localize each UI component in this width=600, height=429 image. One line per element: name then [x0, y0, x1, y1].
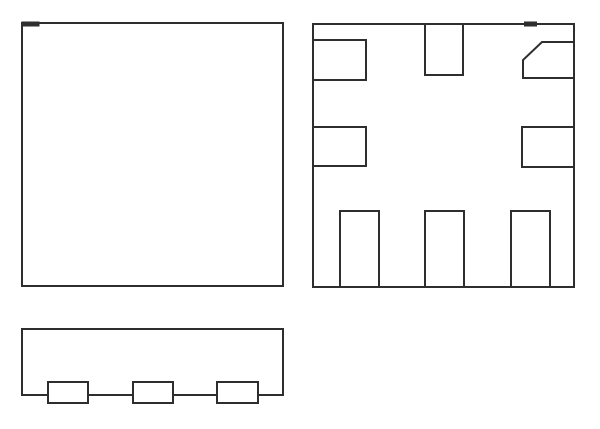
- pad-bottom-left: [340, 211, 379, 287]
- pin1-index-mark-top-view: [22, 22, 40, 27]
- side-view-lead-right: [217, 382, 258, 403]
- package-outline-drawing: [0, 0, 600, 429]
- pad-bottom-center: [425, 211, 464, 287]
- pin1-index-mark-bottom-view: [524, 22, 537, 27]
- side-view-lead-left: [48, 382, 88, 403]
- pad-right-middle: [522, 127, 574, 167]
- top-view-body-outline: [22, 23, 283, 286]
- pad-bottom-right: [511, 211, 550, 287]
- package-side-view: [22, 329, 283, 403]
- package-top-view: [22, 22, 284, 287]
- package-drawing-svg: [0, 0, 600, 429]
- package-bottom-view: [313, 22, 574, 288]
- side-view-lead-center: [133, 382, 173, 403]
- pad-left-middle: [313, 127, 366, 166]
- pad-left-top: [313, 40, 366, 80]
- pad-top-center: [425, 24, 463, 75]
- pad-top-right-chamfered: [523, 42, 574, 78]
- bottom-view-body-outline: [313, 24, 574, 287]
